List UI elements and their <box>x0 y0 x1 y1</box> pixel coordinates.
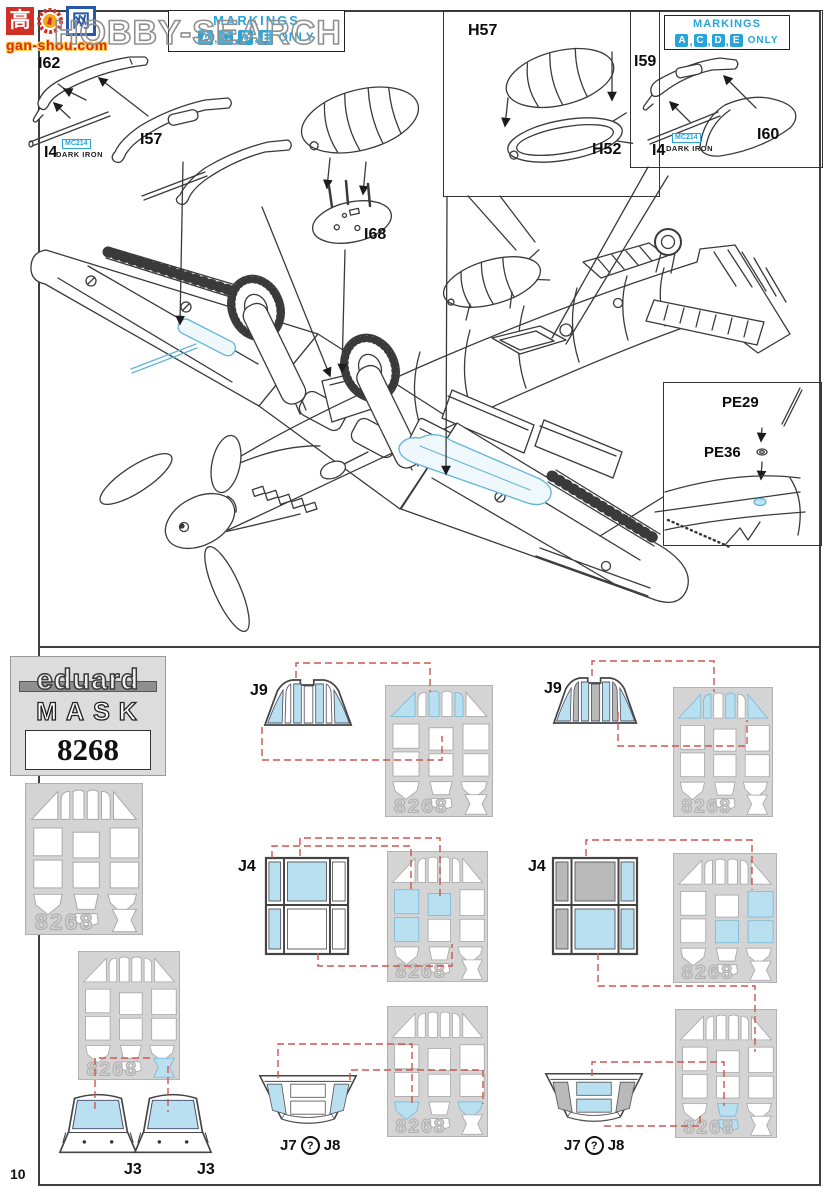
sheet-reference: 8268 <box>25 783 143 935</box>
window-pane <box>269 909 281 949</box>
mask-cutout-sqL1 <box>680 725 704 749</box>
mask-cutout-s1 <box>704 694 711 718</box>
mask-cutout-s1 <box>418 692 426 716</box>
mask-cutout-sqR1 <box>460 1045 484 1071</box>
window-pane <box>287 862 326 901</box>
part-j9-right <box>552 674 640 726</box>
window-pane <box>332 909 345 949</box>
windscreen-pane <box>316 684 324 723</box>
windscreen-pane <box>334 690 349 723</box>
color-name-dark-iron-left: DARK IRON <box>56 150 103 159</box>
step-label-j4-right: J4 <box>528 858 546 876</box>
watermark-logo-box1: 高 <box>6 7 34 35</box>
mask-cutout-sqM1 <box>120 993 143 1015</box>
windscreen-pane <box>620 688 635 721</box>
mask-cutout-trapM1 <box>429 947 450 960</box>
mask-number-box: 8268 <box>25 730 151 770</box>
step-label-j3-a: J3 <box>124 1161 142 1179</box>
label-i60: I60 <box>757 126 779 144</box>
page-number: 10 <box>10 1166 26 1182</box>
mask-cutout-trapM1 <box>716 948 737 961</box>
canopy-pane <box>148 1100 199 1128</box>
mask-cutout-sqM2 <box>73 862 99 888</box>
mask-cutout-sqM1 <box>715 895 738 917</box>
mask-number: 8268 <box>57 732 119 768</box>
mask-cutout-sqM2 <box>120 1018 143 1040</box>
mask-cutout-sqM2 <box>428 919 450 941</box>
mask-cutout-s4 <box>452 858 459 882</box>
mask-cutout-sqL1 <box>394 1045 418 1069</box>
sheet-number: 8268 <box>684 1117 736 1138</box>
mask-cutout-trapM1 <box>715 782 735 795</box>
mask-cutout-trapM1 <box>121 1045 142 1058</box>
windscreen-pane <box>602 682 609 721</box>
mask-cutout-s2 <box>717 1015 726 1040</box>
mask-cutout-sqM1 <box>73 832 99 858</box>
label-i4-right: I4 <box>652 142 665 160</box>
mask-cutout-sqM2 <box>714 755 736 777</box>
mask-cutout-s3 <box>440 1012 449 1037</box>
mask-cutout-sqM2 <box>428 1074 450 1096</box>
mask-cutout-sqL1 <box>393 724 419 748</box>
mask-cutout-sqL1 <box>683 1047 708 1071</box>
part-j3-a <box>55 1088 141 1158</box>
windscreen-pane <box>304 686 313 723</box>
step-label-j7j8-left: J7?J8 <box>280 1136 340 1155</box>
mask-cutout-sqL1 <box>394 890 418 914</box>
eduard-brand: eduard <box>11 663 165 697</box>
mask-cutout-sqR2 <box>748 921 773 943</box>
marking-letter: D <box>712 34 725 47</box>
part-j7j8-right <box>544 1070 644 1130</box>
sheet-j7j8-left: 8268 <box>387 1006 488 1137</box>
window-pane <box>575 909 615 949</box>
step-label-j4-left: J4 <box>238 858 256 876</box>
part-j4-right <box>551 856 639 956</box>
canopy-center-pane <box>291 1084 326 1097</box>
part-j7j8-left <box>258 1072 358 1132</box>
mask-cutout-s3 <box>132 957 141 982</box>
window-pane <box>621 909 634 949</box>
markings-box-right: MARKINGS A,C,D,E ONLY <box>664 15 790 50</box>
mask-cutout-s1 <box>109 958 117 982</box>
part-i57-rail <box>112 98 231 162</box>
markings-only: ONLY <box>748 35 779 46</box>
part-drop-tank <box>294 75 425 164</box>
mask-cutout-sqR2 <box>152 1018 177 1040</box>
windscreen-pane <box>581 682 588 721</box>
mask-cutout-s2 <box>428 1012 437 1037</box>
mask-cutout-sqR1 <box>152 989 177 1014</box>
window-pane <box>575 862 615 901</box>
mask-cutout-sqM1 <box>428 893 450 915</box>
mask-cutout-s3 <box>729 1015 738 1040</box>
marking-letter: A <box>675 34 688 47</box>
mask-cutout-s2 <box>714 693 723 718</box>
mask-cutout-sqL2 <box>394 917 418 941</box>
mask-cutout-s3 <box>728 859 738 884</box>
window-pane <box>287 909 326 949</box>
sheet-j9-left: 8268 <box>385 685 493 817</box>
sheet-number: 8268 <box>682 962 735 983</box>
mask-cutout-s2 <box>428 857 437 882</box>
label-h57: H57 <box>468 22 497 40</box>
canopy-center-pane <box>577 1099 612 1112</box>
mask-cutout-sqL1 <box>34 828 62 856</box>
canopy-center-pane <box>577 1082 612 1095</box>
color-name-dark-iron-right: DARK IRON <box>666 144 713 153</box>
mask-cutout-s4 <box>455 692 463 716</box>
mask-cutout-sqR2 <box>460 1074 484 1096</box>
mask-cutout-sqM1 <box>428 1048 450 1070</box>
step-label-j9-right: J9 <box>544 680 562 698</box>
mask-cutout-sqM2 <box>715 921 738 943</box>
label-i62: I62 <box>38 55 60 73</box>
mask-cutout-sqM2 <box>429 754 453 776</box>
sheet-j4-left: 8268 <box>387 851 488 982</box>
mask-cutout-sqR1 <box>748 891 773 917</box>
mask-cutout-sqR2 <box>460 919 484 941</box>
color-tag-mc214-right: MC214 <box>672 133 701 143</box>
mask-cutout-s4 <box>144 958 152 982</box>
mask-cutout-trapM1 <box>429 1102 450 1115</box>
part-rail-duplicate <box>142 140 291 204</box>
sheet-number: 8268 <box>395 961 446 982</box>
mask-cutout-sqL2 <box>680 753 704 777</box>
label-j7: J7 <box>280 1137 297 1154</box>
mask-cutout-sqR2 <box>463 754 489 776</box>
mask-cutout-sqR2 <box>745 755 769 777</box>
mask-cutout-s4 <box>738 694 745 718</box>
mask-cutout-s3 <box>87 790 98 819</box>
marking-letter: E <box>730 34 743 47</box>
mask-cutout-s4 <box>101 792 110 820</box>
window-pane <box>621 862 634 901</box>
mask-cutout-s2 <box>429 691 439 717</box>
label-i68: I68 <box>364 226 386 244</box>
label-pe29: PE29 <box>722 394 759 411</box>
window-pane <box>332 862 345 901</box>
mask-cutout-s3 <box>442 691 452 717</box>
window-pane <box>556 909 568 949</box>
label-j8: J8 <box>324 1137 341 1154</box>
part-j3-b <box>130 1088 216 1158</box>
mask-cutout-s3 <box>440 857 449 882</box>
mask-cutout-sqL2 <box>393 752 419 776</box>
mask-cutout-s1 <box>705 860 713 884</box>
sheet-j9-right: 8268 <box>673 687 773 817</box>
canopy-pane <box>73 1100 124 1128</box>
sheet-j3: 8268 <box>78 951 180 1080</box>
mask-cutout-s4 <box>452 1013 459 1037</box>
mask-cutout-sqM2 <box>717 1076 740 1098</box>
sheet-j7j8-right: 8268 <box>675 1009 777 1138</box>
label-i59: I59 <box>634 53 656 71</box>
mask-cutout-sqM1 <box>714 729 736 751</box>
mask-cutout-s4 <box>740 860 748 884</box>
mask-cutout-s1 <box>418 858 425 882</box>
label-h52: H52 <box>592 141 621 159</box>
windscreen-pane <box>294 684 302 723</box>
label-j7: J7 <box>564 1137 581 1154</box>
mask-cutout-s4 <box>741 1016 749 1040</box>
question-icon: ? <box>301 1136 320 1155</box>
label-pe36: PE36 <box>704 444 741 461</box>
sheet-number: 8268 <box>681 797 732 817</box>
mask-cutout-sqR1 <box>745 725 769 751</box>
instruction-page: MARKINGS A,C,D,E ONLY MARKINGS A,C,D,E O… <box>0 0 837 1200</box>
mask-cutout-s2 <box>73 790 84 819</box>
sheet-number: 8268 <box>35 909 95 935</box>
mask-cutout-sqM1 <box>429 728 453 750</box>
mask-cutout-s1 <box>706 1016 714 1040</box>
mask-cutout-sqL2 <box>86 1016 111 1040</box>
mask-cutout-trapM1 <box>74 894 98 909</box>
step-label-j3-b: J3 <box>197 1161 215 1179</box>
mask-cutout-trapM1 <box>430 782 452 795</box>
mask-cutout-sqL2 <box>34 860 62 888</box>
step-label-j7j8-right: J7?J8 <box>564 1136 624 1155</box>
question-icon: ? <box>585 1136 604 1155</box>
watermark: 高 网 gan-shou.com HOBBY-SEARCH <box>6 6 108 53</box>
mask-cutout-sqR1 <box>749 1047 774 1072</box>
mask-product-label: MASK <box>17 699 165 725</box>
mask-cutout-s1 <box>61 792 70 820</box>
mask-cutout-sqR1 <box>460 890 484 916</box>
mask-cutout-s1 <box>418 1013 425 1037</box>
mask-cutout-sqR2 <box>110 862 138 888</box>
sheet-j4-right: 8268 <box>673 853 777 983</box>
sheet-number: 8268 <box>394 796 449 817</box>
sheet-number: 8268 <box>395 1116 446 1137</box>
markings-title: MARKINGS <box>665 19 789 30</box>
mask-cutout-s2 <box>120 957 129 982</box>
mask-cutout-s3 <box>726 693 735 718</box>
windscreen-pane <box>591 684 599 721</box>
mask-cutout-sqL1 <box>86 989 111 1013</box>
sheet-number: 8268 <box>87 1059 139 1080</box>
mask-cutout-sqR2 <box>749 1076 774 1098</box>
marking-letter: C <box>694 34 707 47</box>
mask-cutout-sqR1 <box>110 828 138 858</box>
part-j4-left <box>264 856 350 956</box>
step-label-j9-left: J9 <box>250 682 268 700</box>
window-pane <box>269 862 281 901</box>
mask-cutout-sqL2 <box>681 919 706 943</box>
mask-cutout-sqL2 <box>683 1074 708 1098</box>
watermark-brand: HOBBY-SEARCH <box>54 14 342 53</box>
mask-cutout-sqR1 <box>463 724 489 750</box>
label-j8: J8 <box>608 1137 625 1154</box>
color-tag-mc214-left: MC214 <box>62 139 91 149</box>
mask-cutout-s2 <box>715 859 725 884</box>
part-j9-left <box>263 676 355 728</box>
mask-cutout-trapM1 <box>718 1103 739 1116</box>
mask-cutout-sqL2 <box>394 1072 418 1096</box>
label-i57: I57 <box>140 131 162 149</box>
canopy-center-pane <box>291 1101 326 1114</box>
mask-cutout-sqL1 <box>681 891 706 915</box>
eduard-mask-block: eduard MASK 8268 <box>10 656 166 776</box>
window-pane <box>556 862 568 901</box>
mask-cutout-sqM1 <box>717 1051 740 1073</box>
